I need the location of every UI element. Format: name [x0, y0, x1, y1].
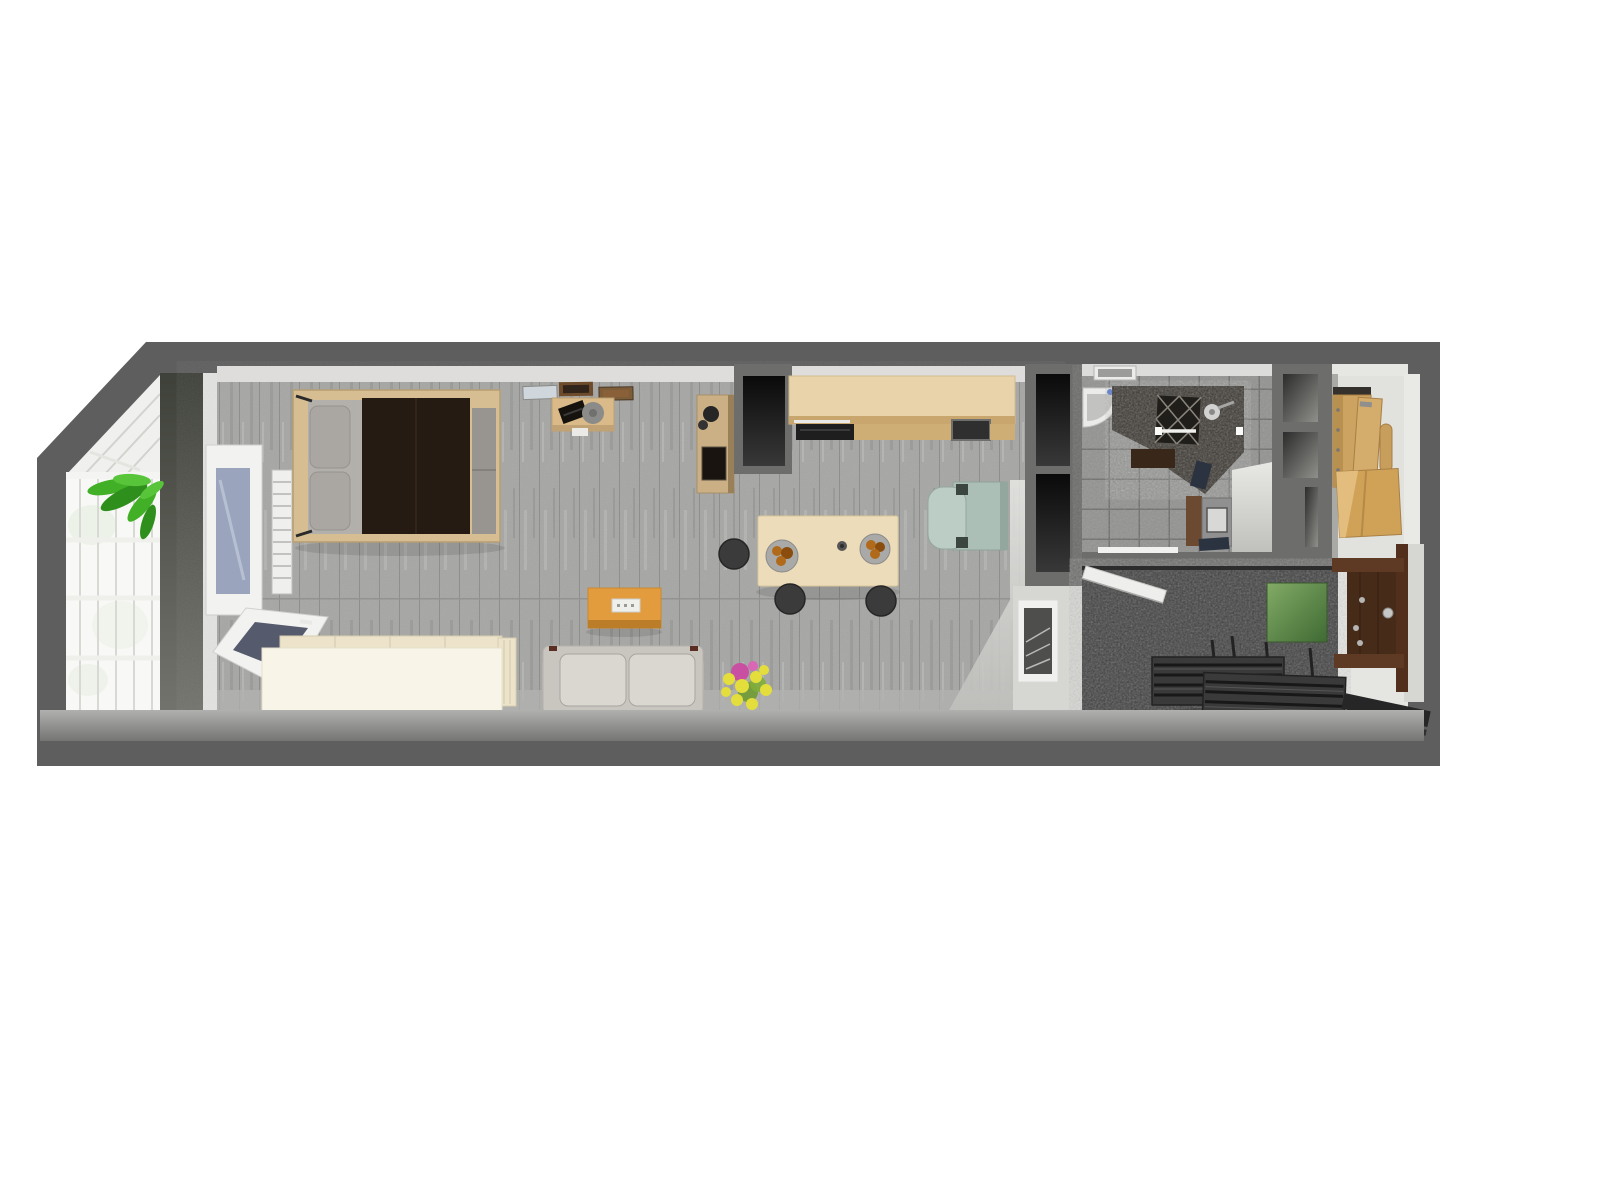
flower — [748, 661, 758, 671]
pillow — [310, 406, 350, 468]
armchair — [928, 482, 1008, 550]
flower — [723, 673, 735, 685]
flower — [746, 698, 758, 710]
bathroom-south-wall — [1082, 552, 1272, 566]
stool — [775, 584, 805, 614]
coffee-table — [588, 588, 661, 628]
daybed — [262, 636, 516, 712]
desk — [552, 398, 614, 436]
armrest-cap — [549, 646, 557, 651]
shelf-niche — [1283, 432, 1318, 478]
closet-north-face — [1332, 364, 1408, 376]
door-threshold — [1098, 547, 1178, 553]
rail-knob — [1236, 427, 1243, 435]
bottom-wall-face — [40, 710, 1424, 741]
north-niche-stub — [734, 364, 792, 474]
kitchen-counter — [789, 376, 1015, 440]
washer-door — [1207, 508, 1227, 532]
builtin-shelf-column — [1272, 364, 1332, 566]
shower-glass-lattice — [1155, 395, 1201, 445]
dark-niche — [1036, 374, 1070, 466]
floorplan-render — [0, 0, 1600, 1200]
glass-tint — [92, 601, 148, 649]
shelf-unit — [697, 395, 734, 493]
lit-wall-face — [1232, 462, 1272, 552]
door-frame-bottom — [1334, 654, 1404, 668]
shelf-decor — [698, 420, 708, 430]
flower — [759, 665, 769, 675]
wall-shelf-nook — [1094, 366, 1136, 380]
storage-chest — [1336, 468, 1401, 537]
plate — [860, 534, 890, 564]
floorplan-canvas — [0, 0, 1600, 1200]
laundry-item — [1199, 537, 1230, 551]
dark-niche — [743, 376, 785, 466]
flower — [721, 687, 731, 697]
door-frame-top — [1332, 558, 1404, 572]
desk-chair-hub — [589, 409, 597, 417]
wall-picture-2 — [559, 382, 593, 397]
pillow — [310, 472, 350, 530]
entry-hall — [1082, 544, 1431, 736]
shelf-niche — [1305, 487, 1318, 547]
armrest-cap — [690, 646, 698, 651]
armchair-post — [956, 484, 968, 495]
bathroom — [1082, 364, 1272, 566]
carpet-edge — [1082, 566, 1338, 570]
bath-mat — [1131, 449, 1175, 468]
door-hinge — [1357, 640, 1363, 646]
radiator — [272, 470, 292, 594]
west-window — [206, 445, 262, 615]
table-item — [840, 544, 844, 548]
dining-table — [758, 516, 898, 586]
double-bed — [293, 390, 500, 542]
cabinet-curved-side — [1380, 424, 1392, 472]
counter-vent — [794, 420, 850, 423]
rail-knob — [1155, 427, 1162, 435]
sofa-cushion — [560, 654, 626, 706]
shelf-decor — [703, 406, 719, 422]
counter-lip — [990, 424, 1015, 440]
door-hinge — [1359, 597, 1365, 603]
closet-east-face — [1404, 374, 1420, 558]
wall-picture-1 — [523, 385, 557, 399]
balcony-shadow-wall — [160, 373, 203, 712]
glass-tint — [68, 664, 108, 696]
sofa-cushion — [629, 654, 695, 706]
armchair-post — [956, 537, 968, 548]
kitchen-sink — [952, 420, 990, 440]
stool — [719, 539, 749, 569]
panel-handle — [1360, 401, 1372, 407]
sofa — [543, 646, 703, 714]
dark-niche — [1036, 474, 1070, 572]
door-handle — [1383, 608, 1393, 618]
flower — [731, 694, 743, 706]
foot-cushion — [472, 408, 496, 534]
green-mat — [1267, 583, 1327, 642]
plate — [766, 540, 798, 572]
living-room — [203, 364, 1085, 724]
flower — [735, 679, 749, 693]
counter-lip — [854, 424, 952, 440]
shelf-niche — [1283, 374, 1318, 422]
flower — [760, 684, 772, 696]
door-hinge — [1353, 625, 1359, 631]
stool — [866, 586, 896, 616]
vanity-washer — [1186, 496, 1232, 551]
chair-footrest — [572, 428, 588, 436]
closet-room — [1332, 364, 1420, 558]
shelf-artwork — [702, 447, 726, 480]
cooktop — [796, 424, 854, 440]
